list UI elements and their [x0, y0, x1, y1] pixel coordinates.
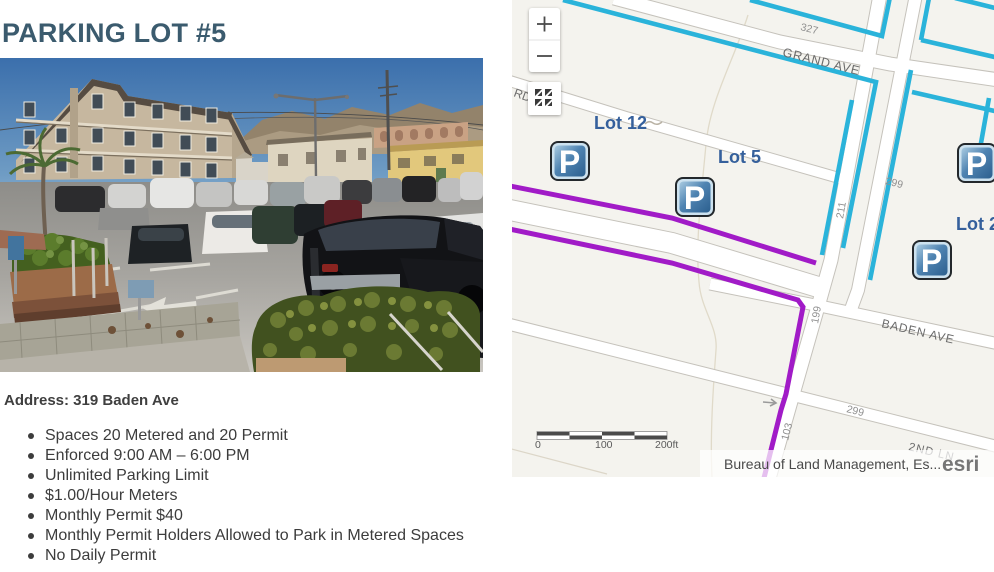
- svg-text:200ft: 200ft: [655, 439, 678, 451]
- svg-text:P: P: [559, 144, 580, 180]
- svg-text:100: 100: [595, 439, 613, 451]
- svg-text:Lot 5: Lot 5: [718, 147, 761, 167]
- svg-text:0: 0: [535, 439, 541, 451]
- svg-text:Lot 2: Lot 2: [956, 214, 994, 234]
- svg-text:Bureau of Land Management, Es.: Bureau of Land Management, Es...: [724, 456, 941, 472]
- svg-text:esri: esri: [942, 453, 979, 476]
- svg-text:Lot 12: Lot 12: [594, 113, 647, 133]
